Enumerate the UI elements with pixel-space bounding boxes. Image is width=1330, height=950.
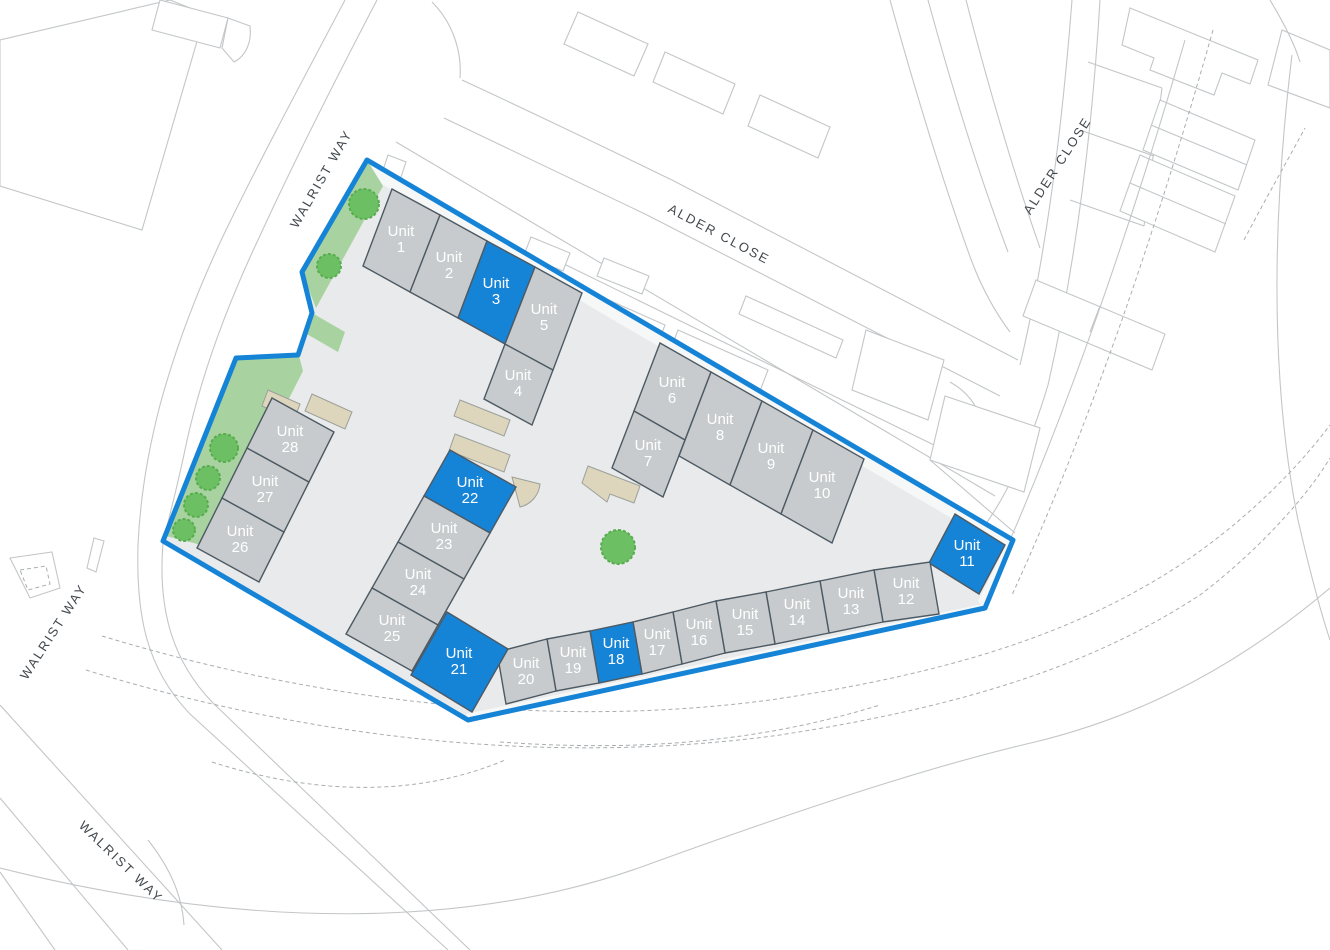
site-plan-map: Unit1 Unit2 Unit3 Unit4 Unit5 Unit6 Unit…: [0, 0, 1330, 950]
context-building: [739, 296, 843, 358]
context-plot: [1268, 30, 1330, 108]
street-label-alder-close-top: ALDER CLOSE: [666, 201, 773, 267]
plot-line: [890, 0, 1010, 332]
traffic-island: [87, 538, 104, 572]
road-edge: [0, 705, 222, 950]
kerb-line: [432, 2, 460, 78]
tree-symbol: [184, 493, 208, 517]
context-building: [1122, 8, 1258, 95]
plot-line: [928, 0, 1008, 252]
context-building: [222, 18, 250, 62]
tree-symbol: [173, 519, 195, 541]
tree-symbol: [317, 254, 341, 278]
context-plot: [930, 396, 1040, 492]
path-edge: [1277, 55, 1330, 640]
street-label-alder-close-right: ALDER CLOSE: [1020, 114, 1094, 217]
plot-line: [1080, 130, 1154, 156]
road-edge: [0, 798, 128, 950]
context-plot: [748, 95, 830, 158]
tree-symbol: [601, 530, 635, 564]
site-plan-page: Unit1 Unit2 Unit3 Unit4 Unit5 Unit6 Unit…: [0, 0, 1330, 950]
context-building: [597, 258, 649, 294]
traffic-island: [10, 552, 60, 598]
street-label-walrist-way-left: WALRIST WAY: [17, 581, 90, 682]
tree-symbol: [210, 434, 238, 462]
context-plot: [852, 330, 944, 420]
street-label-walrist-way-bottom: WALRIST WAY: [76, 818, 166, 906]
tree-symbol: [349, 189, 379, 219]
road-edge: [0, 872, 55, 950]
tree-symbol: [196, 466, 220, 490]
context-plot: [564, 12, 648, 76]
context-plot: [653, 52, 735, 114]
